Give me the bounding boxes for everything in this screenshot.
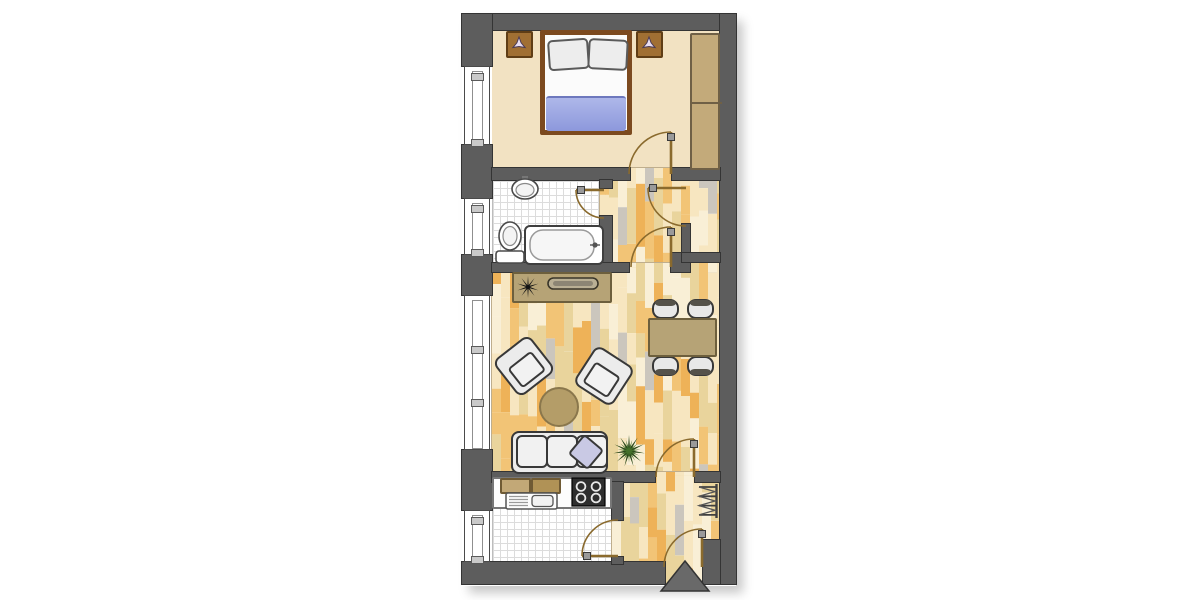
bedroom-window-sash bbox=[472, 71, 483, 144]
living-room-window-handle bbox=[471, 399, 484, 407]
wall-kitchen-east-lo bbox=[612, 557, 623, 564]
bathroom-window-handle bbox=[471, 205, 484, 213]
wall-entry-stub bbox=[703, 540, 720, 584]
kitchen-cabinet-right bbox=[531, 478, 561, 494]
coffee-table bbox=[539, 387, 579, 427]
nightstand-left bbox=[506, 31, 533, 58]
dining-chair-3-back bbox=[655, 369, 676, 375]
wall-left-a bbox=[462, 14, 492, 66]
living-room-window-handle bbox=[471, 346, 484, 354]
floor-plan-canvas bbox=[0, 0, 1200, 600]
dining-chair-4 bbox=[687, 356, 714, 376]
dining-chair-1 bbox=[652, 299, 679, 319]
bedroom-window-handle bbox=[471, 139, 484, 147]
kitchen-window bbox=[464, 510, 490, 562]
wall-kitchen-east-up bbox=[612, 482, 623, 520]
bed-blanket bbox=[546, 96, 626, 131]
double-bed bbox=[540, 30, 632, 135]
living-room-window-sash bbox=[472, 300, 483, 449]
dining-chair-1-back bbox=[655, 300, 676, 306]
wall-bottom bbox=[462, 562, 665, 584]
dining-chair-2 bbox=[687, 299, 714, 319]
dining-chair-4-back bbox=[690, 369, 711, 375]
wall-living-north bbox=[492, 263, 629, 272]
armchair-right-seat bbox=[582, 361, 621, 398]
dining-chair-3 bbox=[652, 356, 679, 376]
bathroom-floor bbox=[492, 180, 612, 272]
kitchen-window-handle bbox=[471, 556, 484, 564]
dining-chair-2-back bbox=[690, 300, 711, 306]
wardrobe bbox=[690, 33, 720, 170]
bedroom-window bbox=[464, 66, 490, 145]
living-room-window bbox=[464, 295, 490, 450]
sofa-cushion bbox=[516, 435, 548, 468]
wall-left-d bbox=[462, 450, 492, 510]
dining-table bbox=[648, 318, 717, 357]
kitchen-cabinet-left bbox=[500, 478, 531, 494]
bed-pillow-right bbox=[587, 38, 629, 71]
wall-left-c bbox=[462, 255, 492, 295]
wall-bath-east-upper bbox=[600, 180, 612, 188]
bathroom-window-handle bbox=[471, 249, 484, 257]
bathroom-window bbox=[464, 198, 490, 255]
sideboard bbox=[512, 272, 612, 303]
nightstand-right bbox=[636, 31, 663, 58]
wall-bedroom-south-w bbox=[492, 168, 630, 180]
bedroom-window-handle bbox=[471, 73, 484, 81]
wall-left-b bbox=[462, 145, 492, 198]
wall-kitchen-north-e bbox=[695, 472, 720, 482]
bed-pillow-left bbox=[547, 38, 590, 72]
wall-storage-south bbox=[682, 253, 720, 262]
wall-top bbox=[462, 14, 736, 30]
kitchen-window-handle bbox=[471, 517, 484, 525]
wall-right bbox=[720, 14, 736, 584]
divider-line bbox=[692, 102, 722, 104]
sofa bbox=[511, 431, 608, 474]
